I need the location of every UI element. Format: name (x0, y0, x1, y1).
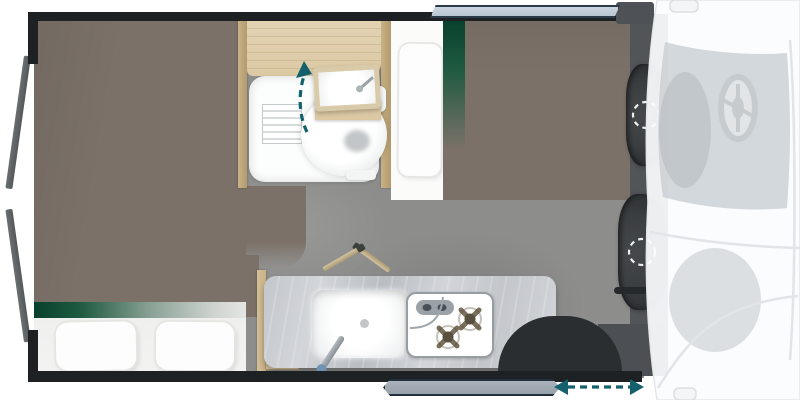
rear-corner-post (28, 330, 38, 382)
side-mirror (670, 0, 698, 12)
burner (459, 308, 481, 330)
two-burner-stove (406, 292, 494, 358)
front-bench-backrest (398, 44, 441, 176)
rear-door-open-top (5, 56, 31, 190)
side-mirror (674, 388, 696, 400)
dashboard-shadow (659, 72, 711, 188)
kitchen-sink (312, 290, 408, 358)
rear-door-open-bottom (5, 209, 31, 343)
top-window (430, 5, 620, 18)
front-bed-accent-stripe (443, 18, 465, 200)
stove-graphic (408, 294, 492, 356)
rear-bed (34, 16, 246, 302)
front-bed (443, 18, 632, 200)
pillow (56, 321, 137, 370)
pillow (156, 322, 234, 371)
sliding-door (383, 379, 560, 396)
sliding-door-arrow-icon (552, 374, 646, 400)
sink-drain (360, 319, 369, 328)
swivel-sink-arrow-icon (292, 60, 318, 136)
toilet-bowl (344, 130, 370, 152)
steering-wheel (721, 77, 755, 139)
swivel-sink (313, 64, 381, 111)
bathroom-wall-left (238, 18, 247, 188)
toilet-foot (346, 170, 376, 180)
cab-body (640, 0, 800, 400)
rear-corner-post (28, 12, 38, 64)
sink-drain (356, 85, 363, 92)
burner (437, 326, 459, 348)
rear-bed-accent-stripe (34, 302, 246, 318)
campervan-floorplan (0, 0, 800, 400)
door-window-ghost (669, 248, 761, 352)
